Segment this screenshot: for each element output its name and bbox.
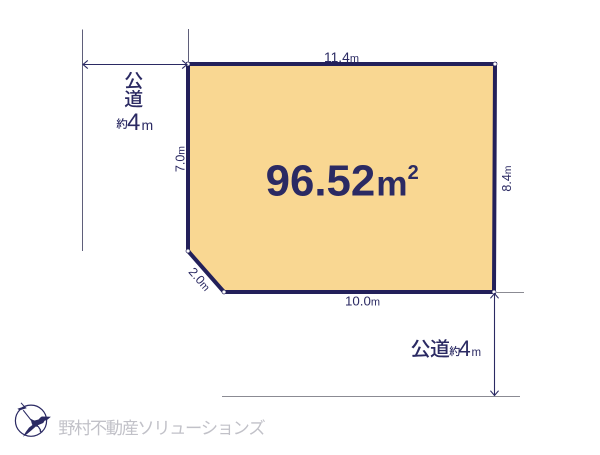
svg-text:m: m bbox=[142, 117, 154, 133]
svg-text:4: 4 bbox=[127, 109, 140, 136]
svg-text:96.52m2: 96.52m2 bbox=[266, 157, 419, 206]
svg-text:10.0m: 10.0m bbox=[345, 294, 380, 309]
svg-text:m: m bbox=[472, 347, 482, 359]
svg-text:4: 4 bbox=[459, 336, 471, 361]
svg-text:8.4m: 8.4m bbox=[500, 165, 514, 191]
svg-text:11.4m: 11.4m bbox=[324, 50, 359, 65]
svg-text:7.0m: 7.0m bbox=[174, 146, 188, 172]
